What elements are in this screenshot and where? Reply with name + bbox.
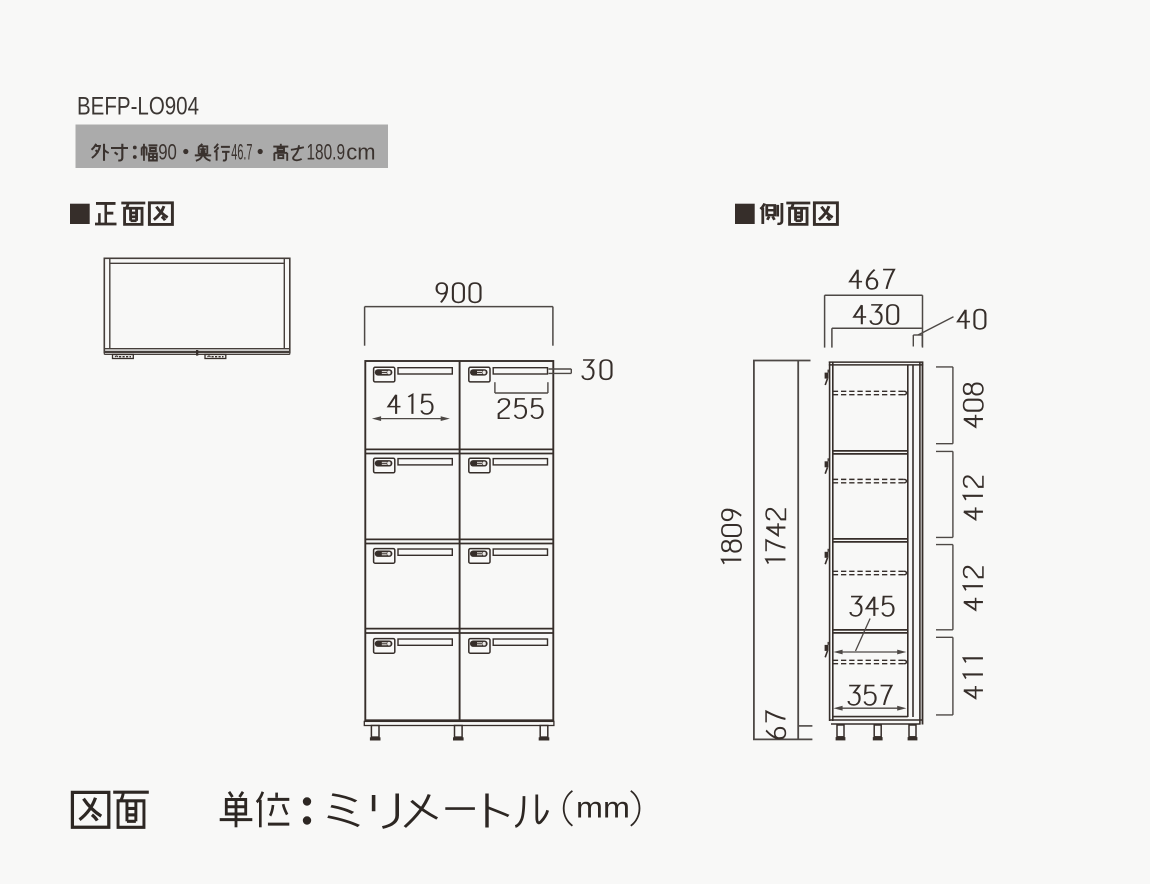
svg-text:180.9: 180.9 xyxy=(307,139,346,164)
svg-text:cm: cm xyxy=(346,139,375,164)
svg-text:BEFP-LO904: BEFP-LO904 xyxy=(77,92,199,120)
svg-text:90: 90 xyxy=(158,139,177,164)
svg-text:46.7: 46.7 xyxy=(231,139,252,164)
svg-text:mm: mm xyxy=(576,792,630,825)
